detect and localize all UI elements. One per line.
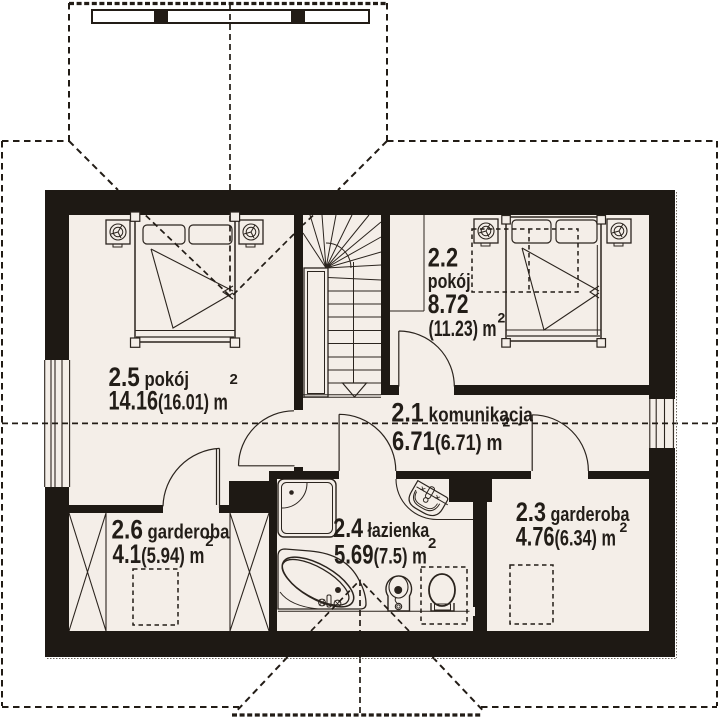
svg-text:2: 2: [498, 309, 506, 325]
svg-text:4.1(5.94) m: 4.1(5.94) m: [113, 539, 205, 569]
svg-text:5.69(7.5) m: 5.69(7.5) m: [334, 540, 427, 571]
svg-text:2: 2: [428, 535, 436, 552]
svg-text:2: 2: [205, 533, 213, 550]
svg-text:(11.23) m: (11.23) m: [429, 318, 497, 342]
svg-text:2: 2: [503, 414, 511, 430]
svg-text:2.1 komunikacja: 2.1 komunikacja: [391, 398, 533, 428]
svg-text:6.71(6.71) m: 6.71(6.71) m: [392, 427, 502, 457]
svg-text:2: 2: [230, 371, 238, 388]
svg-text:14.16(16.01) m: 14.16(16.01) m: [109, 387, 228, 417]
svg-text:8.72: 8.72: [428, 289, 469, 319]
svg-text:2.2: 2.2: [428, 243, 458, 273]
svg-text:2: 2: [620, 519, 628, 535]
svg-text:4.76(6.34) m: 4.76(6.34) m: [516, 523, 616, 553]
